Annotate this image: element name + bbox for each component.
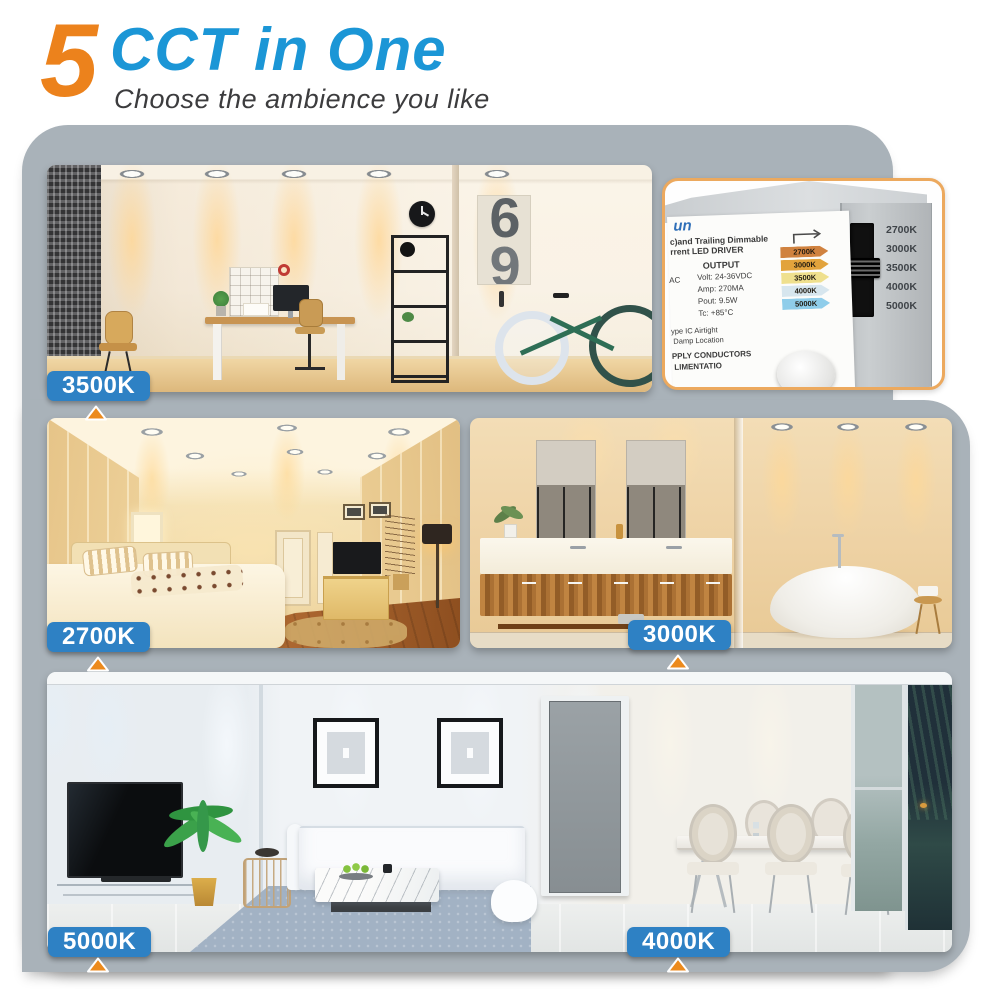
branch-pot (393, 574, 409, 590)
chair-leg-b (729, 875, 736, 913)
cct-label-2700k: 2700K (47, 622, 150, 652)
area-rug (285, 616, 407, 648)
faucet-1 (570, 546, 586, 549)
switch-label-4000k: 4000K (886, 278, 917, 297)
side-stool (914, 596, 942, 604)
scene-bedroom (47, 418, 460, 648)
office-chair-back (299, 299, 323, 327)
wall-frame-1 (313, 718, 379, 788)
soundbar (101, 876, 171, 882)
note-supply-conductors: PPLY CONDUCTORS (672, 349, 752, 361)
vanity-handles (490, 582, 722, 584)
brand-logo-partial: un (673, 217, 692, 235)
driver-title-line2: rrent LED DRIVER (670, 244, 744, 257)
bathtub (770, 566, 922, 638)
wire-side-table (243, 858, 291, 908)
cct-label-4000k: 4000K (627, 927, 730, 957)
wall-art-1 (343, 504, 365, 520)
chair-leg-a (769, 875, 776, 913)
desk-leg-right (337, 324, 345, 380)
shelf-globe (400, 242, 415, 257)
vanity-cabinet (480, 574, 732, 616)
chair-seat (687, 862, 739, 875)
tv-shelf-1 (57, 884, 207, 886)
wall-frame-2 (437, 718, 503, 788)
headphones (278, 264, 290, 276)
plant-pot (504, 524, 517, 538)
doorway-frame (541, 696, 629, 896)
street-lamp-glow (920, 803, 927, 808)
shelf-plant (402, 312, 414, 322)
cable-gland-knob (777, 351, 835, 390)
scene-bathroom (470, 418, 952, 648)
page-title: CCT in One (110, 18, 447, 82)
tag-4000k: 4000K (781, 284, 829, 297)
black-cup (383, 864, 392, 873)
window-bar (855, 787, 902, 790)
room-divider (734, 418, 743, 648)
floor-lamp-pole (436, 544, 439, 608)
soap-bottle (616, 524, 623, 539)
note-airtight: ype IC Airtight (671, 325, 718, 336)
scene-living-dining (47, 672, 952, 952)
tv-cabinet (323, 576, 389, 620)
wall-clock (409, 201, 435, 227)
stool-towels (918, 586, 938, 596)
dining-chair-2 (765, 804, 821, 914)
green-apples (341, 863, 373, 875)
pointer-triangle-3000k (666, 653, 690, 670)
plant-leaf-4 (197, 800, 209, 852)
chair-back (689, 804, 737, 864)
chair-seat (765, 862, 817, 875)
product-infographic: { "header": { "number": "5", "title": "C… (0, 0, 1000, 1000)
tub-faucet (838, 534, 841, 568)
office-chair-seat (295, 327, 325, 334)
vanity-counter (480, 538, 732, 574)
tv-shelf-2 (63, 894, 203, 896)
wall-pilaster (452, 165, 459, 357)
title-number: 5 (40, 6, 98, 116)
tv (333, 542, 381, 574)
side-table-bowl (255, 848, 279, 857)
pointer-triangle-2700k (86, 655, 110, 672)
pointer-triangle-5000k (86, 956, 110, 973)
tag-5000k: 5000K (782, 297, 830, 310)
switch-label-5000k: 5000K (886, 297, 917, 316)
dry-branches (385, 514, 415, 576)
white-pouf (491, 880, 537, 922)
tag-3000k: 3000K (781, 258, 829, 271)
note-alimentation-partial: LIMENTATIO (674, 361, 722, 372)
monitor-stand (288, 311, 293, 318)
switch-label-3000k: 3000K (886, 240, 917, 259)
window-inner (851, 685, 905, 911)
stool-leg-2 (933, 604, 940, 634)
floor-lamp-shade (422, 524, 452, 544)
doorway-opening (549, 701, 621, 893)
tv (67, 782, 183, 878)
desk-plant (213, 291, 229, 307)
tag-3500k: 3500K (781, 271, 829, 284)
desk-top (205, 317, 355, 324)
switch-label-2700k: 2700K (886, 221, 917, 240)
stool-seat (99, 343, 137, 351)
output-heading: OUTPUT (703, 259, 740, 270)
cct-label-3000k: 3000K (628, 620, 731, 650)
window-outer-dark (905, 685, 952, 930)
office-chair-base (295, 367, 325, 370)
tag-2700k: 2700K (780, 245, 828, 258)
coffee-table-top (315, 868, 439, 902)
stool-back (105, 311, 133, 345)
dining-chair-1 (687, 804, 743, 914)
poster-digit-mirrored: 6 (478, 238, 531, 285)
cct-label-3500k: 3500K (47, 371, 150, 401)
number-poster: 6 6 (477, 195, 531, 285)
switch-direction-arrow-icon (792, 228, 827, 244)
pointer-triangle-4000k (666, 956, 690, 973)
switch-label-3500k: 3500K (886, 259, 917, 278)
bicycle-handlebar (499, 291, 504, 307)
spec-pout: Pout: 9.5W (698, 296, 738, 306)
cct-label-5000k: 5000K (48, 927, 151, 957)
office-chair-pole (308, 334, 311, 368)
pointer-triangle-3500k (84, 404, 108, 421)
wine-glass-1 (753, 822, 759, 836)
mirror-2 (626, 440, 686, 542)
cct-switch-scale: 2700K 3000K 3500K 4000K 5000K (886, 221, 917, 316)
note-damp-location: Damp Location (673, 335, 724, 346)
mirror-1 (536, 440, 596, 542)
desk-leg-left (213, 324, 222, 380)
bicycle-seat (553, 293, 569, 298)
desk-papers (243, 303, 269, 316)
spec-volt: Volt: 24-36VDC (697, 271, 752, 282)
spec-amp: Amp: 270MA (697, 283, 744, 294)
page-subtitle: Choose the ambience you like (114, 84, 490, 115)
desk-plant-pot (216, 306, 226, 316)
chair-leg-a (691, 875, 698, 913)
faucet-2 (666, 546, 682, 549)
input-partial: AC (669, 276, 680, 285)
tub-faucet-spout (832, 534, 844, 537)
metal-shelf (391, 235, 449, 383)
chair-leg-b (807, 875, 814, 913)
scene-home-office: 6 6 (47, 165, 652, 392)
ceiling (47, 672, 952, 685)
chair-back (767, 804, 815, 864)
plant-pot (189, 878, 219, 906)
driver-detail-inset: 2700K 3000K 3500K 4000K 5000K un c)and T… (662, 178, 945, 390)
spec-tc: Tc: +85°C (698, 308, 733, 318)
